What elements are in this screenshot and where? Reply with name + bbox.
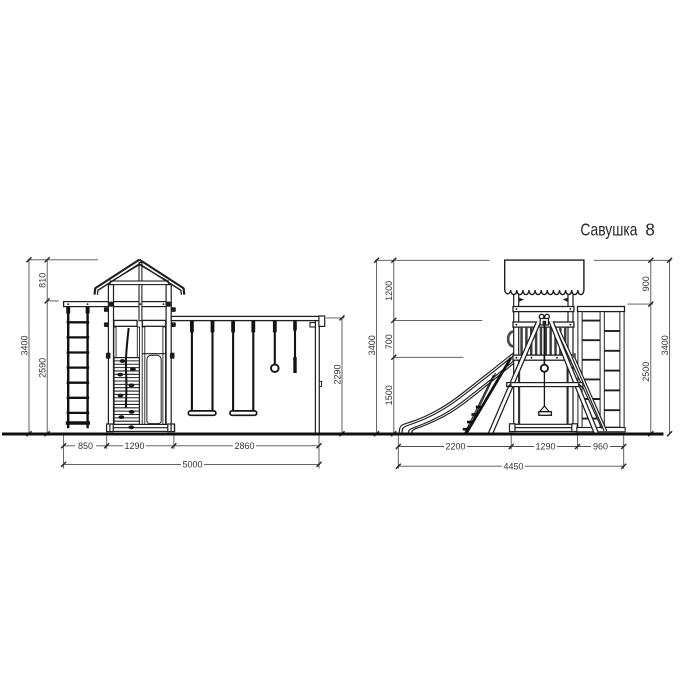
svg-text:1200: 1200 bbox=[384, 281, 394, 301]
svg-text:3400: 3400 bbox=[19, 335, 29, 355]
svg-text:Савушка: Савушка bbox=[580, 220, 637, 240]
svg-text:3400: 3400 bbox=[660, 335, 670, 355]
svg-text:850: 850 bbox=[78, 441, 93, 451]
svg-text:2200: 2200 bbox=[445, 442, 465, 452]
svg-text:700: 700 bbox=[384, 334, 394, 349]
svg-text:2590: 2590 bbox=[38, 358, 48, 378]
svg-text:3400: 3400 bbox=[367, 335, 377, 355]
svg-text:900: 900 bbox=[641, 276, 651, 291]
svg-text:1290: 1290 bbox=[124, 441, 144, 451]
svg-text:2500: 2500 bbox=[641, 362, 651, 382]
svg-text:1500: 1500 bbox=[384, 385, 394, 405]
svg-text:960: 960 bbox=[593, 442, 608, 452]
svg-text:810: 810 bbox=[38, 273, 48, 288]
svg-text:1290: 1290 bbox=[535, 442, 555, 452]
svg-text:5000: 5000 bbox=[182, 460, 202, 470]
svg-text:8: 8 bbox=[645, 220, 655, 240]
svg-text:2290: 2290 bbox=[332, 364, 342, 384]
svg-text:4450: 4450 bbox=[503, 461, 523, 471]
svg-text:2860: 2860 bbox=[234, 441, 254, 451]
